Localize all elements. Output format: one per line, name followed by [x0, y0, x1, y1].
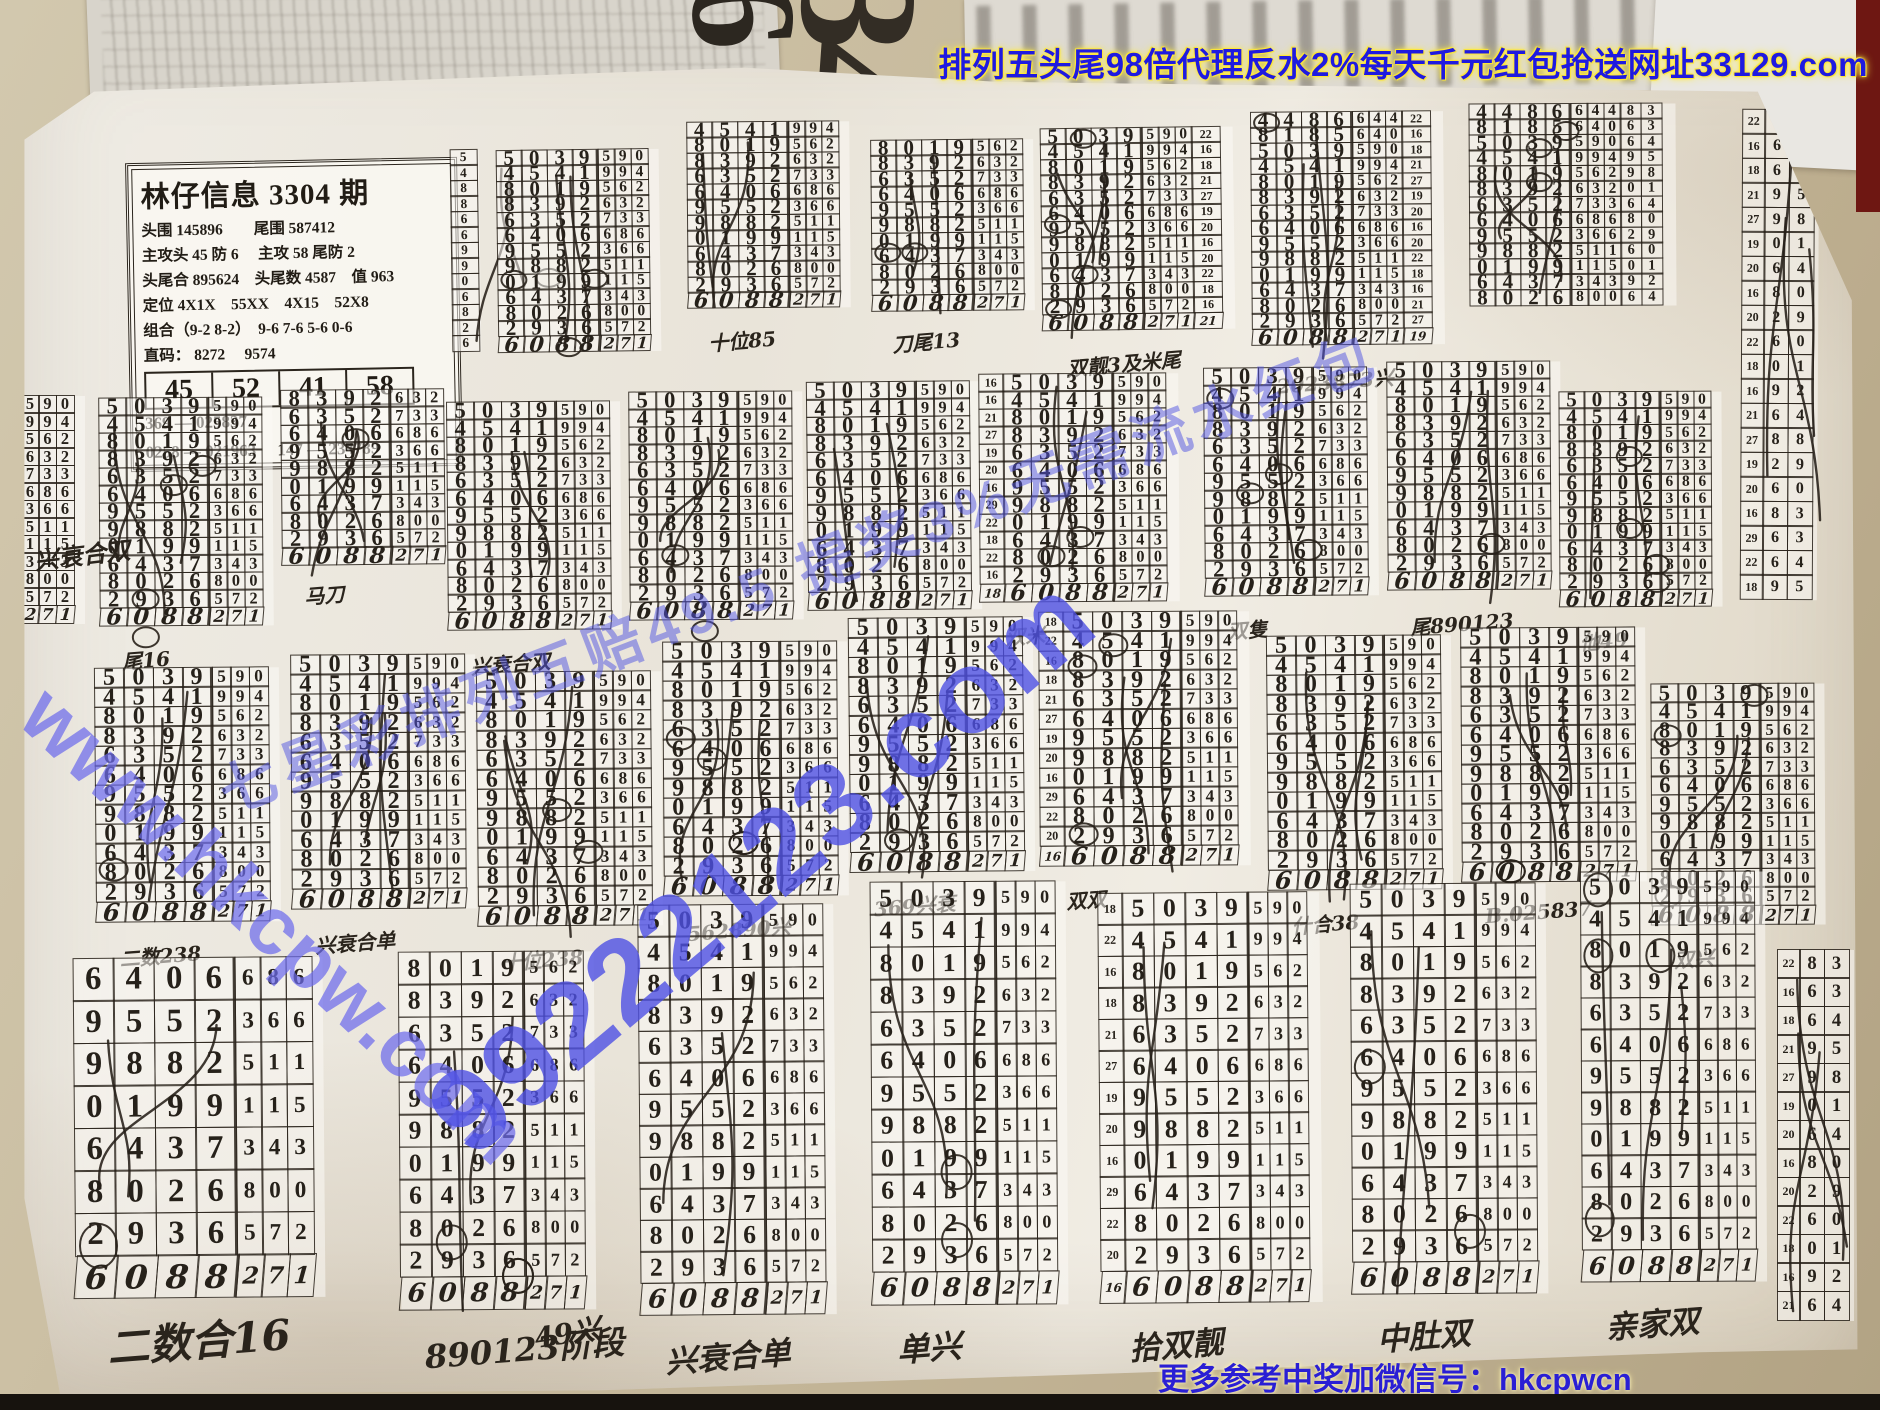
grid-cell: 9	[1495, 914, 1516, 947]
grid-row: 199552366	[1100, 1081, 1321, 1114]
grid-cell: 2	[56, 587, 75, 606]
grid-cell: 0	[818, 835, 838, 856]
grid-cell: 9	[212, 686, 232, 707]
grid-cell: 4	[670, 1061, 703, 1094]
grid-cell: 2	[964, 978, 997, 1012]
grid-cell: 6	[1446, 1197, 1479, 1230]
grid-cell: 9	[995, 913, 1016, 947]
grid-cell: 7	[493, 1178, 526, 1212]
grid-cell: 9	[460, 983, 493, 1017]
grid-cell: 6	[985, 733, 1005, 754]
grid-cell: 9	[782, 903, 803, 936]
grid-row: 228026800	[1101, 1207, 1322, 1240]
grid-cell: 4	[985, 791, 1005, 812]
grid-cell: 9	[1596, 626, 1616, 647]
grid-cell: 9	[671, 1250, 704, 1283]
grid-cell: 0	[639, 1156, 672, 1189]
grid-cell: 6	[1003, 583, 1034, 602]
grid-cell: 2	[1035, 977, 1056, 1011]
grid-cell: 19	[978, 443, 1004, 462]
grid-row: 4541994	[1351, 915, 1546, 948]
grid-cell: 3	[1477, 1166, 1498, 1199]
grid-cell: 0	[232, 861, 252, 882]
grid-cell: 27	[1403, 311, 1433, 328]
grid-cell: 6	[73, 1255, 118, 1299]
grid-cell: 6	[1698, 965, 1718, 998]
grid-cell: 3	[764, 1092, 785, 1125]
grid-row: 8019562	[399, 951, 594, 985]
grid-block: 5039590454199480195628392632635273364066…	[807, 381, 982, 610]
grid-row: 1692	[1778, 1264, 1854, 1293]
grid-row: 0199115	[400, 1146, 595, 1180]
grid-cell: 2	[733, 1092, 766, 1125]
grid-cell: 6	[1677, 423, 1695, 441]
grid-cell: 8	[799, 738, 819, 759]
grid-cell: 7	[594, 748, 614, 769]
grid-block: 8019562839263263527336406686955236698825…	[399, 951, 596, 1310]
grid-cell: 18	[1739, 574, 1763, 600]
grid-row: 1680	[1778, 1150, 1854, 1179]
grid-cell: 2	[287, 1211, 314, 1255]
grid-cell: 5	[1349, 883, 1382, 916]
grid-cell: 3	[799, 699, 819, 720]
grid-cell: 21	[978, 408, 1004, 427]
grid-cell: 3	[1778, 756, 1797, 776]
grid-cell: 5	[1736, 1122, 1756, 1155]
grid-cell: 0	[1231, 577, 1261, 596]
grid-cell: 8	[869, 946, 902, 980]
grid-cell: 3	[1495, 1008, 1516, 1041]
grid-cell: 6	[1446, 1229, 1479, 1262]
grid-cell: 6	[563, 1080, 584, 1114]
grid-row: 0199115	[1352, 1135, 1547, 1168]
grid-cell: 7	[780, 718, 800, 739]
grid-row: 2164	[1778, 1292, 1854, 1321]
grid-cell: 9	[1824, 1177, 1850, 1207]
grid-cell: 9	[1413, 977, 1446, 1010]
grid-cell: 8	[889, 590, 919, 609]
grid-row: 2264	[1741, 551, 1817, 576]
grid-cell: 1	[525, 1145, 546, 1179]
grid-cell: 0	[461, 1048, 494, 1082]
grid-cell: 5	[1185, 1017, 1218, 1050]
grid-cell: 21	[1777, 1034, 1801, 1064]
grid-cell: 9	[72, 1000, 114, 1044]
grid-cell: 0	[1824, 1205, 1850, 1235]
grid-cell: 5	[213, 881, 233, 902]
grid-cell: 6	[734, 1250, 767, 1283]
grid-row: 6088271	[851, 851, 1035, 872]
grid-cell: 8	[1496, 1040, 1517, 1073]
grid-cell: 3	[1698, 1059, 1718, 1092]
grid-cell: 9	[763, 935, 784, 968]
grid-row: 6406686	[74, 957, 323, 1002]
grid-cell: 2	[155, 1169, 197, 1213]
grid-cell: 6	[1350, 1261, 1386, 1294]
grid-cell: 5	[1247, 891, 1268, 924]
grid-cell: 9	[1186, 1143, 1219, 1176]
grid-cell: 9	[195, 1084, 237, 1128]
grid-row: 6088271	[665, 875, 849, 896]
grid-cell: 3	[1268, 1017, 1289, 1050]
grid-cell: 6	[628, 601, 659, 620]
grid-cell: 5	[967, 831, 987, 852]
grid-cell: 9	[493, 1145, 526, 1179]
grid-cell: 8	[637, 967, 670, 1000]
grid-cell: 6	[1421, 731, 1441, 752]
grid-block: 8392632635273364066869552366988251101991…	[281, 389, 456, 566]
grid-cell: 8	[1635, 588, 1663, 606]
grid-cell: 5	[595, 807, 615, 828]
grid-cell: 0	[523, 335, 551, 352]
grid-cell: 6	[1122, 1018, 1155, 1051]
grid-cell: 0	[1155, 1270, 1191, 1303]
grid-cell: 3	[212, 783, 232, 804]
grid-cell: 8	[934, 1108, 967, 1142]
grid-cell: 6	[1763, 402, 1789, 428]
grid-cell: 2	[1615, 665, 1635, 686]
grid-row: 166088271	[1102, 1270, 1323, 1303]
grid-cell: 3	[427, 712, 447, 733]
info-line: 直码： 8272 9574	[144, 338, 448, 366]
grid-cell: 1	[1597, 782, 1617, 803]
grid-cell: 5	[869, 881, 902, 915]
grid-cell: 3	[1736, 1154, 1756, 1187]
grid-cell: 3	[803, 1029, 824, 1062]
grid-cell: 3	[1421, 712, 1441, 733]
grid-cell: 6	[1580, 1028, 1611, 1061]
grid-cell: 9	[798, 660, 818, 681]
grid-cell: 16	[978, 373, 1004, 392]
grid-cell: 9	[964, 945, 997, 979]
grid-cell: 0	[712, 291, 740, 308]
grid-cell: 20	[1777, 1177, 1801, 1207]
grid-cell: 6	[1716, 933, 1736, 966]
grid-cell: 9	[638, 1093, 671, 1126]
grid-cell: 3	[234, 998, 261, 1042]
grid-cell: 9	[1402, 653, 1422, 674]
grid-cell: 1	[1444, 914, 1477, 947]
grid-cell: 6	[1123, 1049, 1156, 1082]
grid-cell: 6	[1735, 1028, 1755, 1061]
grid-cell: 6	[73, 1127, 115, 1171]
grid-cell: 6	[1003, 733, 1023, 754]
grid-cell: 2	[1351, 1229, 1384, 1262]
grid-cell: 2	[1422, 848, 1442, 869]
grid-cell: 4	[1154, 1049, 1187, 1082]
grid-cell: 1	[804, 1281, 828, 1314]
grid-cell: 5	[1516, 1134, 1537, 1167]
grid-cell: 8	[1268, 1048, 1289, 1081]
grid-cell: 8	[74, 1170, 116, 1214]
grid-cell: 1	[1185, 954, 1218, 987]
grid-cell: 1	[784, 1155, 805, 1188]
grid-cell: 5	[408, 653, 428, 674]
grid-cell: 6	[780, 699, 800, 720]
grid-cell: 6	[1267, 954, 1288, 987]
grid-cell: 9	[1123, 1112, 1156, 1145]
grid-cell: 3	[783, 1029, 804, 1062]
grid-cell: 1	[409, 809, 429, 830]
grid-row: 6088271	[1353, 1261, 1548, 1294]
grid-cell: 1	[1677, 522, 1695, 540]
grid-cell: 1	[544, 1145, 565, 1179]
grid-cell: 0	[287, 1168, 314, 1212]
grid-cell: 0	[670, 1282, 706, 1315]
grid-cell: 18	[1097, 892, 1123, 925]
grid-cell: 4	[1269, 1174, 1290, 1207]
grid-cell: 3	[932, 881, 965, 915]
grid-cell: 8	[738, 291, 766, 308]
grid-cell: 6	[734, 1218, 767, 1251]
grid-cell: 3	[613, 748, 633, 769]
grid-cell: 6	[494, 1210, 527, 1244]
grid-cell: 0	[1413, 1040, 1446, 1073]
grid-cell: 9	[1764, 182, 1790, 208]
grid-cell: 4	[869, 913, 902, 947]
grid-cell: 1	[1496, 1134, 1517, 1167]
grid-row: 166088271	[1041, 845, 1251, 866]
grid-row: 2260	[1742, 330, 1818, 355]
grid-cell: 8	[997, 1205, 1018, 1239]
grid-cell: 6	[1669, 1028, 1700, 1061]
grid-cell: 5	[113, 999, 155, 1043]
grid-cell: 0	[933, 1043, 966, 1077]
grid-cell: 1	[613, 826, 633, 847]
grid-cell: 8	[784, 1060, 805, 1093]
grid-cell: 6	[427, 770, 447, 791]
grid-cell: 8	[1058, 582, 1089, 601]
grid-cell: 1	[1668, 902, 1699, 935]
grid-cell: 5	[917, 573, 936, 592]
grid-cell: 6	[1041, 313, 1069, 330]
grid-cell: 2	[1124, 1238, 1157, 1271]
grid-cell: 6	[194, 956, 236, 1000]
grid-cell: 6	[1762, 549, 1788, 575]
grid-cell: 5	[1385, 771, 1405, 792]
grid-cell: 21	[1740, 402, 1764, 428]
grid-cell: 5	[804, 1155, 825, 1188]
grid-cell: 6	[1762, 476, 1788, 502]
grid-cell: 1	[818, 776, 838, 797]
grid-block: 5039590454199480195628392632635273364066…	[477, 671, 663, 926]
grid-cell: 8	[565, 904, 598, 925]
grid-cell: 2	[1763, 304, 1789, 330]
grid-cell: 2	[732, 1029, 765, 1062]
grid-cell: 1	[213, 822, 233, 843]
grid-cell: 29	[1099, 1176, 1125, 1209]
grid-cell: 7	[232, 880, 252, 901]
grid-cell: 8	[639, 1219, 672, 1252]
grid-block: 5039590454199480195628392632635273364066…	[629, 391, 804, 620]
grid-cell: 4	[1787, 403, 1813, 429]
grid-cell: 0	[114, 1254, 159, 1298]
grid-cell: 0	[1677, 555, 1695, 573]
grid-cell: 9	[1787, 452, 1813, 478]
grid-block: 5039590224541994168019562188392632216352…	[1041, 127, 1236, 331]
grid-row: 6437343	[75, 1127, 324, 1172]
grid-cell: 5	[430, 1081, 463, 1115]
grid-cell: 9	[1199, 629, 1219, 650]
grid-cell: 6	[544, 1080, 565, 1114]
grid-cell: 5	[701, 1093, 734, 1126]
grid-cell: 8	[195, 1254, 240, 1298]
grid-cell: 8	[711, 600, 742, 619]
grid-cell: 2	[1217, 1080, 1250, 1113]
grid-cell: 8	[1151, 844, 1184, 865]
grid-cell: 2	[1532, 552, 1551, 571]
grid-cell: 5	[235, 1041, 262, 1085]
grid-cell: 6	[1445, 1040, 1478, 1073]
grid-cell: 6	[1515, 1071, 1536, 1104]
grid-cell: 5	[1579, 841, 1599, 862]
grid-cell: 5	[1697, 870, 1717, 903]
grid-cell: 8	[1414, 1103, 1447, 1136]
grid-cell: 9	[780, 660, 800, 681]
grid-cell: 9	[1015, 880, 1036, 914]
grid-cell: 9	[1669, 1122, 1700, 1155]
grid-cell: 0	[1067, 313, 1095, 330]
grid-cell: 0	[802, 903, 823, 936]
grid-cell: 4	[113, 957, 155, 1001]
grid-cell: 8	[349, 888, 382, 909]
grid-cell: 19	[1038, 728, 1064, 749]
grid-cell: 7	[1476, 1008, 1497, 1041]
grid-cell: 3	[703, 1250, 736, 1283]
grid-cell: 7	[1384, 712, 1404, 733]
grid-cell: 3	[1403, 712, 1423, 733]
grid-cell: 2	[952, 572, 971, 591]
grid-cell: 0	[1381, 883, 1414, 916]
grid-cell: 22	[1742, 108, 1766, 134]
grid-cell: 9	[1475, 914, 1496, 947]
grid-cell: 1	[1288, 1111, 1309, 1144]
grid-cell: 8	[1327, 327, 1355, 344]
grid-cell: 3	[213, 842, 233, 863]
grid-cell: 5	[1382, 1072, 1415, 1105]
grid-cell: 7	[734, 1187, 767, 1220]
grid-cell: 3	[1578, 743, 1598, 764]
grid-row: 6088271	[642, 1282, 837, 1315]
grid-cell: 0	[901, 946, 934, 980]
grid-cell: 22	[1038, 631, 1064, 652]
grid-cell: 1	[1616, 762, 1636, 783]
grid-cell: 5	[1153, 923, 1186, 956]
grid-cell: 2	[493, 1113, 526, 1147]
grid-row: 6437343	[1353, 1167, 1548, 1200]
grid-cell: 2	[1514, 945, 1535, 978]
grid-row: 9882511	[640, 1125, 835, 1158]
grid-cell: 3	[1716, 965, 1736, 998]
grid-cell: 16	[1038, 845, 1066, 866]
grid-cell: 6	[1181, 708, 1201, 729]
grid-cell: 5	[1180, 610, 1200, 631]
grid-cell: 0	[1002, 616, 1022, 637]
grid-cell: 4	[249, 685, 269, 706]
grid-row: 1663	[1778, 979, 1854, 1008]
grid-cell: 7	[1660, 456, 1678, 474]
grid-cell: 1	[1403, 790, 1423, 811]
grid-cell: 18	[1038, 670, 1064, 691]
grid-cell: 3	[1402, 692, 1422, 713]
grid-cell: 7	[986, 830, 1006, 851]
grid-cell: 2	[964, 1010, 997, 1044]
grid-cell: 1	[985, 752, 1005, 773]
grid-cell: 1	[1269, 1143, 1290, 1176]
grid-cell: 4	[1421, 653, 1441, 674]
grid-cell: 8	[260, 956, 287, 1000]
grid-cell: 8	[1549, 860, 1582, 881]
grid-cell: 6	[1124, 1175, 1157, 1208]
grid-cell: 9	[1350, 1072, 1383, 1105]
grid-row: 6	[453, 336, 481, 352]
grid-cell: 0	[656, 601, 687, 620]
grid-row: 8019562	[639, 967, 834, 1000]
grid-cell: 0	[1693, 390, 1711, 408]
grid-cell: 5	[1422, 790, 1442, 811]
grid-cell: 8	[548, 335, 576, 352]
grid-row: 9882511	[1582, 1092, 1766, 1124]
grid-cell: 6	[871, 294, 899, 311]
block-label: 中肚双	[1376, 1309, 1473, 1361]
grid-cell: 0	[1799, 1091, 1825, 1121]
grid-cell: 5	[1761, 812, 1780, 832]
grid-cell: 5	[1384, 673, 1404, 694]
grid-cell: 2	[1414, 1198, 1447, 1231]
grid-cell: 2	[1787, 378, 1813, 404]
grid-cell: 0	[1036, 1205, 1057, 1239]
grid-cell: 3	[594, 787, 614, 808]
grid-cell: 5	[1288, 1143, 1309, 1176]
grid-cell: 5	[1413, 1072, 1446, 1105]
grid-row: 1801	[1778, 1235, 1854, 1264]
grid-cell: 2	[1287, 985, 1308, 1018]
grid-row: 0199115	[872, 1141, 1067, 1175]
grid-cell: 3	[997, 1173, 1018, 1207]
grid-cell: 0	[1269, 1206, 1290, 1239]
grid-cell: 6	[871, 1173, 904, 1207]
grid-row: 1864	[1778, 1007, 1854, 1036]
grid-cell: 7	[262, 1211, 289, 1255]
grid-cell: 6	[1660, 473, 1678, 491]
grid-cell: 2	[802, 966, 823, 999]
grid-cell: 4	[1184, 923, 1217, 956]
grid-cell: 2	[872, 1238, 905, 1272]
grid-cell: 9	[612, 670, 632, 691]
grid-cell: 0	[902, 1271, 938, 1305]
grid-cell: 4	[1497, 1166, 1518, 1199]
grid-cell: 8	[1118, 312, 1146, 329]
grid-cell: 1	[427, 809, 447, 830]
grid-cell: 6	[807, 591, 837, 610]
grid-cell: 8	[1469, 289, 1496, 306]
grid-cell: 21	[1038, 689, 1064, 710]
grid-cell: 9	[408, 673, 428, 694]
grid-cell: 6	[212, 764, 232, 785]
grid-cell: 27	[1741, 206, 1765, 232]
grid-cell: 2	[774, 582, 793, 601]
grid-cell: 0	[1787, 329, 1813, 355]
grid-cell: 2	[1516, 1228, 1537, 1261]
grid-cell: 3	[1187, 1238, 1220, 1271]
grid-block: 5039590454199480195628392632635273364066…	[1559, 392, 1722, 607]
grid-cell: 8	[1250, 1206, 1271, 1239]
grid-cell: 2	[249, 724, 269, 745]
grid-cell: 9	[1762, 574, 1788, 600]
grid-cell: 6	[1799, 1205, 1825, 1235]
grid-cell: 0	[671, 1219, 704, 1252]
grid-cell: 6	[1795, 793, 1814, 813]
